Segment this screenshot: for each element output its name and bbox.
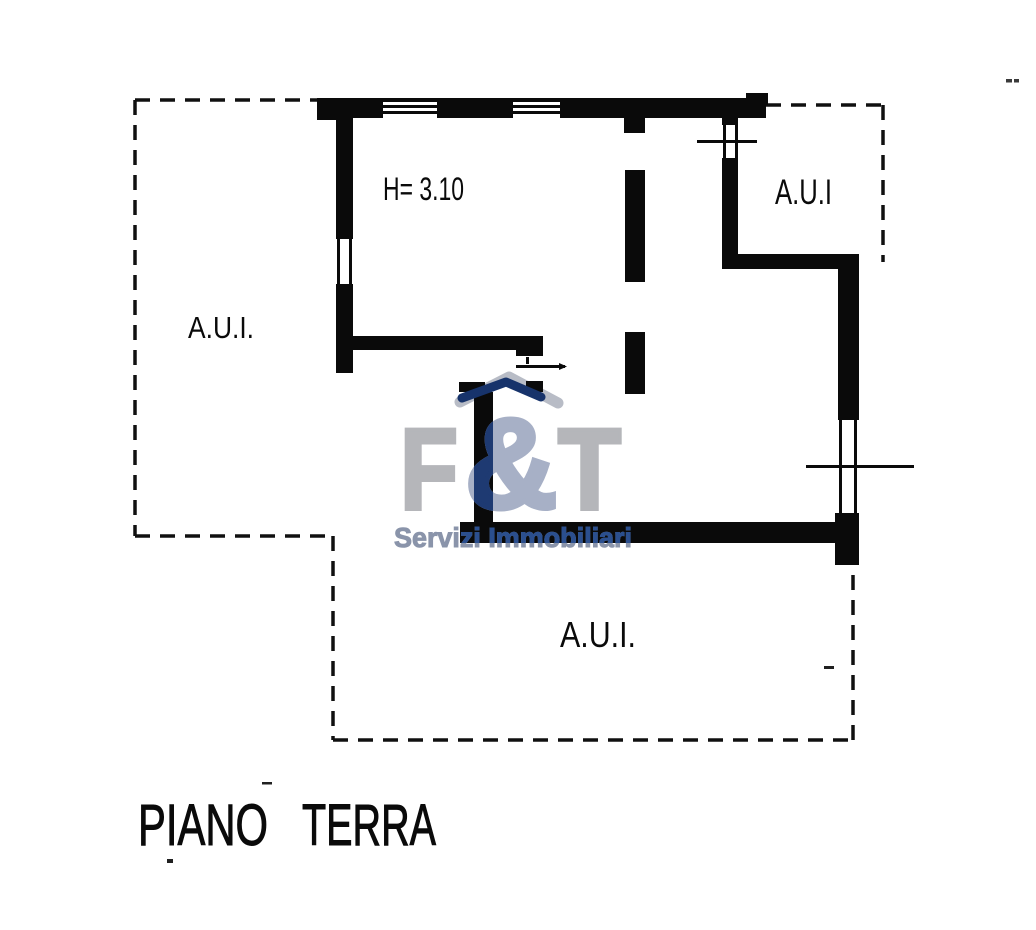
svg-text:T: T [558, 406, 621, 534]
svg-text:H= 3.10: H= 3.10 [383, 171, 464, 207]
svg-text:TERRA: TERRA [302, 793, 436, 858]
svg-text:PIANO: PIANO [138, 793, 268, 858]
svg-text:A.U.I: A.U.I [775, 173, 832, 212]
svg-text:F: F [400, 406, 458, 534]
svg-text:A.U.I.: A.U.I. [188, 310, 254, 345]
svg-text:A.U.I.: A.U.I. [560, 614, 636, 655]
